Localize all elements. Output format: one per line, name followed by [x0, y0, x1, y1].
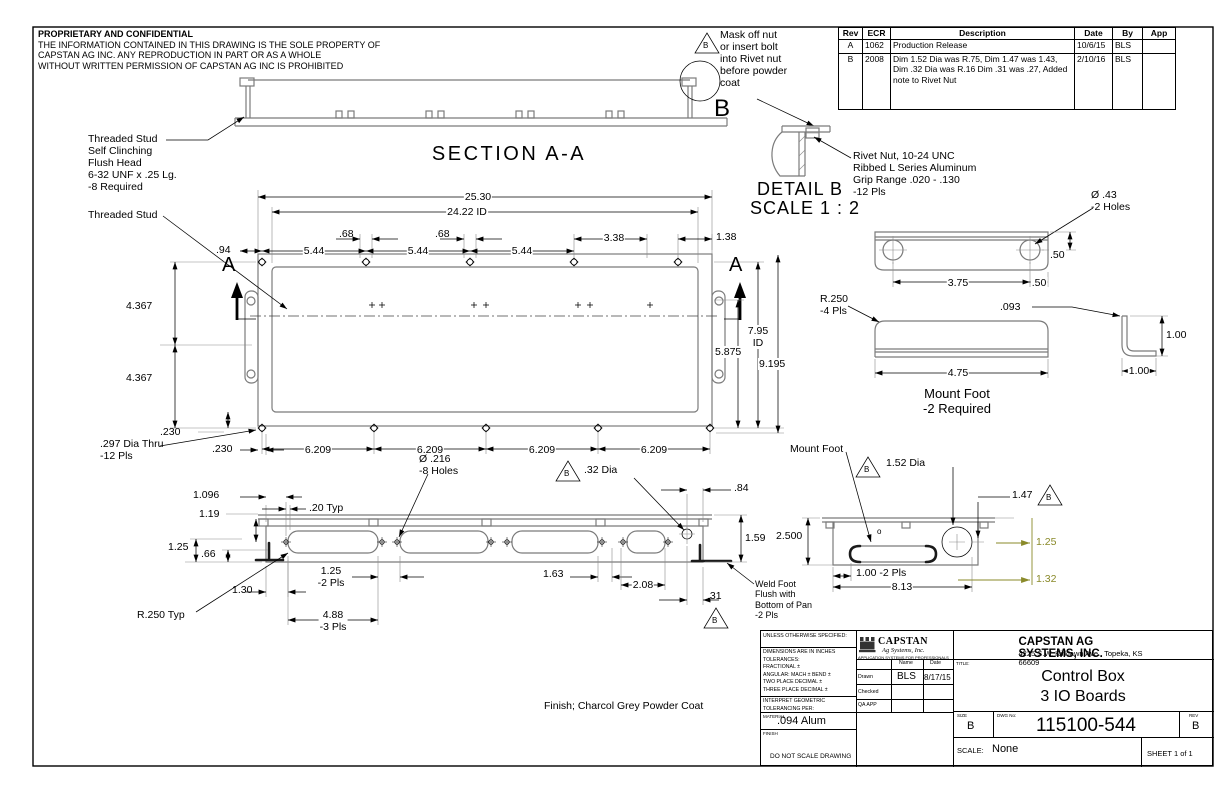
scale-label: SCALE:: [957, 746, 984, 755]
sheet-label: SHEET 1 of 1: [1147, 749, 1193, 758]
dim-208: 2.08: [632, 579, 654, 591]
dim-b1: 6.209: [304, 444, 332, 456]
dim-84: .84: [734, 482, 749, 494]
dim-125: 1.25: [168, 541, 188, 553]
dim-id-height: 7.95 ID: [747, 325, 769, 349]
finish-label: FINISH: [763, 731, 778, 737]
dim-130: 1.30: [232, 584, 252, 596]
rev-b: B: [839, 53, 863, 109]
dim-t2: .230: [212, 443, 232, 455]
dim-163: 1.63: [543, 568, 563, 580]
side-mount-foot-label: Mount Foot: [790, 443, 843, 455]
description-col-header: Description: [891, 28, 1075, 40]
divider: [856, 712, 953, 713]
dim-488: 4.88 -3 Pls: [319, 609, 348, 633]
dim-152dia: 1.52 Dia: [886, 457, 925, 469]
ecr-col-header: ECR: [863, 28, 891, 40]
divider: [891, 659, 892, 712]
dim-100-2pls: 1.00 -2 Pls: [856, 567, 906, 579]
desc-a: Production Release: [891, 39, 1075, 53]
drawn-label: Drawn: [858, 674, 873, 682]
mount-foot-side-view: [848, 306, 1168, 378]
rev-label: REV: [1189, 713, 1198, 719]
dim-66: .66: [201, 548, 216, 560]
divider: [856, 669, 953, 670]
section-title: SECTION A-A: [432, 143, 586, 166]
dwg-no-value: 115100-544: [1036, 715, 1136, 737]
dim-32dia: .32 Dia: [584, 464, 617, 476]
drawn-name: BLS: [897, 671, 916, 682]
dim-1096: 1.096: [193, 489, 219, 501]
detail-b-view: [772, 126, 851, 176]
title-label: TITLE:: [956, 661, 970, 667]
bottom-strip-view: [185, 474, 754, 625]
flag-weld-letter: B: [712, 616, 717, 625]
checked-label: Checked: [858, 689, 878, 697]
dim-overall: 25.30: [464, 191, 492, 203]
side-view: [802, 452, 1032, 592]
revision-row-a: A 1062 Production Release 10/6/15 BLS: [839, 39, 1176, 53]
company-address: 4225 S.W. Kirklawn Ave., Topeka, KS 6660…: [1019, 649, 1148, 667]
pilot-hole-note: Ø .216 -8 Holes: [419, 453, 458, 477]
dim-31: .31: [707, 590, 722, 602]
dim-2500: 2.500: [776, 530, 802, 542]
bottom-fasteners: [258, 424, 714, 432]
date-a: 10/6/15: [1075, 39, 1113, 53]
by-col-header: By: [1113, 28, 1143, 40]
section-letter-left: A: [222, 254, 235, 277]
dim-h1: 4.367: [126, 300, 152, 312]
dim-093: .093: [1000, 301, 1020, 313]
scale-value: None: [992, 743, 1018, 755]
section-letter-right: A: [729, 254, 742, 277]
divider: [923, 659, 924, 712]
finish-note: Finish; Charcol Grey Powder Coat: [544, 700, 703, 712]
divider: [761, 729, 856, 730]
drawing-title-line1: Control Box: [1041, 668, 1125, 686]
divider: [1141, 737, 1142, 767]
dim-5875: 5.875: [714, 346, 742, 358]
dim-p3: 5.44: [511, 245, 533, 257]
app-col-header: App: [1143, 28, 1176, 40]
by-b: BLS: [1113, 53, 1143, 109]
dim-375: 3.75: [947, 277, 969, 289]
dim-b3: 6.209: [528, 444, 556, 456]
rev-col-header: Rev: [839, 28, 863, 40]
divider: [856, 699, 953, 700]
divider: [953, 631, 954, 767]
logo-subtitle: Ag Systems, Inc.: [882, 647, 925, 654]
detail-b-title: DETAIL B: [757, 179, 843, 200]
pilot-holes: [281, 537, 673, 547]
rev-value: B: [1192, 720, 1199, 732]
dim-h2: 4.367: [126, 372, 152, 384]
app-a: [1143, 39, 1176, 53]
dim-inner-width: 24.22 ID: [446, 206, 488, 218]
dim-125-highlight: 1.25: [1036, 536, 1056, 548]
dim-p2: 5.44: [407, 245, 429, 257]
dim-9195: 9.195: [758, 358, 786, 370]
dim-50a: .50: [1049, 249, 1066, 261]
flag-32-letter: B: [564, 469, 569, 478]
dim-t1: .230: [160, 426, 180, 438]
ecr-b: 2008: [863, 53, 891, 109]
dim-g2: .68: [435, 228, 450, 240]
rivet-nut-note: Rivet Nut, 10-24 UNC Ribbed L Series Alu…: [853, 150, 976, 198]
dim-g1: .68: [339, 228, 354, 240]
top-fasteners: [258, 258, 682, 266]
dwg-no-label: DWG No:: [997, 713, 1016, 719]
dim-475: 4.75: [947, 367, 969, 379]
divider: [993, 711, 994, 737]
unless-otherwise-note: UNLESS OTHERWISE SPECIFIED:: [763, 633, 847, 641]
dim-20typ: .20 Typ: [309, 502, 343, 514]
drawing-sheet: PROPRIETARY AND CONFIDENTIAL THE INFORMA…: [0, 0, 1224, 792]
proprietary-body: THE INFORMATION CONTAINED IN THIS DRAWIN…: [38, 40, 380, 71]
dim-147: 1.47: [1012, 489, 1032, 501]
dim-b4: 6.209: [640, 444, 668, 456]
name-col-header: Name: [899, 660, 913, 668]
dim-138: 1.38: [716, 231, 736, 243]
drawing-title-line2: 3 IO Boards: [1040, 688, 1125, 706]
proprietary-title: PROPRIETARY AND CONFIDENTIAL: [38, 29, 193, 39]
mask-note: Mask off nut or insert bolt into Rivet n…: [720, 29, 787, 89]
revision-flag-triangles: [556, 33, 1062, 628]
threaded-stud-note: Threaded Stud Self Clinching Flush Head …: [88, 133, 177, 193]
foot-hole-note: Ø .43 -2 Holes: [1091, 189, 1130, 213]
dim-813: 8.13: [891, 581, 913, 593]
detail-b-scale: SCALE 1 : 2: [750, 198, 860, 219]
dim-119: 1.19: [199, 508, 219, 520]
qa-label: QA APP: [858, 702, 877, 710]
title-block: UNLESS OTHERWISE SPECIFIED: DIMENSIONS A…: [760, 630, 1213, 766]
flag-152-letter: B: [864, 465, 869, 474]
interpret-note: INTERPRET GEOMETRIC TOLERANCING PER:: [763, 698, 825, 713]
detail-circle-letter: B: [714, 95, 730, 123]
mount-foot-top-view: [875, 208, 1093, 287]
logo-tagline: APPLICATION SYSTEMS FOR PROFESSIONALS: [858, 655, 949, 660]
app-b: [1143, 53, 1176, 109]
thru-hole-note: .297 Dia Thru -12 Pls: [100, 438, 163, 462]
small-o-mark: o: [877, 527, 881, 536]
mount-foot-label: Mount Foot -2 Required: [923, 387, 991, 417]
dim-125-2pls: 1.25 -2 Pls: [318, 565, 345, 589]
by-a: BLS: [1113, 39, 1143, 53]
size-label: SIZE: [957, 713, 967, 719]
dim-132-highlight: 1.32: [1036, 573, 1056, 585]
date-b: 2/10/16: [1075, 53, 1113, 109]
date-col-header: Date: [1075, 28, 1113, 40]
revision-table: Rev ECR Description Date By App A 1062 P…: [838, 27, 1176, 110]
foot-radius-note: R.250 -4 Pls: [820, 293, 848, 317]
dim-338: 3.38: [603, 232, 625, 244]
drawn-date: 8/17/15: [924, 673, 951, 682]
divider: [856, 684, 953, 685]
mask-flag-letter: B: [703, 41, 708, 50]
material-value: .094 Alum: [777, 715, 826, 727]
threaded-stud-label: Threaded Stud: [88, 209, 157, 221]
size-value: B: [967, 720, 974, 732]
revision-header-row: Rev ECR Description Date By App: [839, 28, 1176, 40]
date-col-header: Date: [930, 660, 941, 668]
dim-p1: 5.44: [303, 245, 325, 257]
radius-typ-note: R.250 Typ: [137, 609, 185, 621]
divider: [761, 647, 856, 648]
do-not-scale-note: DO NOT SCALE DRAWING: [770, 753, 851, 760]
ecr-a: 1062: [863, 39, 891, 53]
dim-leg-v: 1.00: [1166, 329, 1186, 341]
divider: [761, 696, 856, 697]
front-view: [160, 190, 784, 455]
divider: [1179, 711, 1180, 737]
tolerances-note: DIMENSIONS ARE IN INCHES TOLERANCES: FRA…: [763, 649, 835, 694]
capstan-logo-icon: [859, 636, 876, 653]
revision-row-b: B 2008 Dim 1.52 Dia was R.75, Dim 1.47 w…: [839, 53, 1176, 109]
logo-name: CAPSTAN: [878, 636, 928, 647]
dim-159: 1.59: [745, 532, 765, 544]
desc-b: Dim 1.52 Dia was R.75, Dim 1.47 was 1.43…: [891, 53, 1075, 109]
dim-leg-h: 1.00: [1128, 365, 1150, 377]
weld-foot-note: Weld Foot Flush with Bottom of Pan -2 Pl…: [755, 579, 812, 620]
divider: [953, 737, 1214, 738]
rev-a: A: [839, 39, 863, 53]
flag-147-letter: B: [1046, 493, 1051, 502]
dim-50b: .50: [1031, 277, 1048, 289]
